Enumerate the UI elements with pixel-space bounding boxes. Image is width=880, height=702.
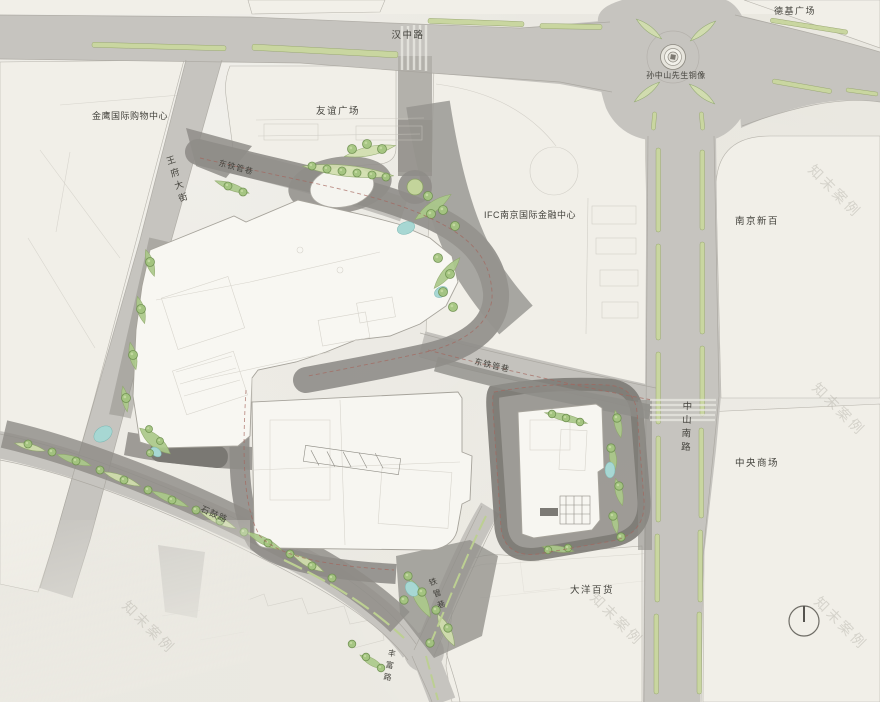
tree — [439, 206, 448, 215]
tree — [562, 414, 570, 422]
tree-highlight — [170, 498, 172, 500]
tree-highlight — [310, 564, 312, 566]
tree-highlight — [226, 184, 228, 186]
tree-highlight — [451, 305, 454, 308]
north-sidewalk — [0, 0, 880, 14]
tree — [144, 486, 152, 494]
tree — [157, 438, 164, 445]
tree-highlight — [74, 459, 76, 461]
tree-highlight — [350, 147, 353, 150]
drawing-fade — [0, 520, 250, 702]
green-median — [700, 242, 705, 334]
tree — [72, 457, 80, 465]
tree-highlight — [611, 514, 614, 517]
tree-highlight — [446, 626, 449, 629]
green-median — [697, 612, 702, 694]
tree — [146, 258, 155, 267]
tree — [427, 210, 436, 219]
tree — [348, 145, 357, 154]
green-median — [540, 23, 602, 29]
tree-highlight — [406, 574, 409, 577]
tree-highlight — [340, 169, 342, 171]
tree — [137, 305, 146, 314]
tree-highlight — [578, 420, 580, 422]
tree — [576, 418, 584, 426]
tree-highlight — [139, 307, 142, 310]
block-xinbai — [716, 136, 880, 398]
tree-highlight — [441, 290, 444, 293]
tree-highlight — [325, 167, 327, 169]
tree — [400, 596, 408, 604]
tree — [122, 394, 131, 403]
green-median — [655, 534, 660, 602]
tree — [418, 588, 426, 596]
tree-highlight — [384, 175, 386, 177]
tree — [24, 440, 32, 448]
tree-highlight — [330, 576, 332, 578]
tree-highlight — [434, 608, 437, 611]
site-plan-canvas: 汉中路 德基广场 孙中山先生铜像 金鹰国际购物中心 友谊广场 王府大街 东铁管巷… — [0, 0, 880, 702]
tree-highlight — [428, 641, 431, 644]
tree-highlight — [617, 484, 620, 487]
tree — [362, 653, 370, 661]
site-plan-drawing — [0, 0, 880, 702]
tree — [168, 496, 176, 504]
tree-highlight — [131, 353, 134, 356]
tree — [224, 182, 232, 190]
tree — [368, 171, 376, 179]
tree — [96, 466, 104, 474]
tree — [548, 410, 556, 418]
tree-highlight — [436, 256, 439, 259]
tree-highlight — [148, 451, 150, 453]
tree — [424, 192, 433, 201]
tree-highlight — [615, 416, 618, 419]
tree-highlight — [441, 208, 444, 211]
tree-highlight — [420, 590, 423, 593]
tree — [434, 254, 443, 263]
tree — [444, 624, 452, 632]
tree-highlight — [146, 488, 148, 490]
tree-highlight — [364, 655, 366, 657]
green-median — [699, 428, 704, 518]
tree — [615, 482, 623, 490]
tree — [120, 476, 128, 484]
connector-green-circle — [407, 179, 423, 195]
tree-highlight — [124, 396, 127, 399]
tree-highlight — [370, 173, 372, 175]
water-pond — [605, 462, 615, 478]
tree-highlight — [98, 468, 100, 470]
tree — [607, 444, 615, 452]
green-median — [698, 530, 703, 602]
tree-highlight — [50, 450, 52, 452]
tree-highlight — [609, 446, 612, 449]
tree-highlight — [379, 666, 381, 668]
tree-highlight — [380, 147, 383, 150]
tree-highlight — [448, 272, 451, 275]
tree-highlight — [350, 642, 352, 644]
tree — [328, 574, 336, 582]
tree — [382, 173, 390, 181]
tree-highlight — [426, 194, 429, 197]
tree — [609, 512, 617, 520]
tree — [446, 270, 455, 279]
tree-highlight — [122, 478, 124, 480]
tree-highlight — [564, 416, 566, 418]
tree-highlight — [550, 412, 552, 414]
tree — [432, 606, 440, 614]
tree-highlight — [147, 427, 149, 429]
block-zhongyang — [703, 404, 880, 702]
tree-highlight — [365, 142, 368, 145]
east-edge-strip — [638, 400, 652, 550]
tree-highlight — [310, 164, 312, 166]
green-median — [656, 436, 661, 522]
tree — [147, 450, 154, 457]
tree-highlight — [355, 171, 357, 173]
tree — [404, 572, 412, 580]
tree — [613, 414, 621, 422]
tree-highlight — [194, 508, 196, 510]
green-median — [654, 614, 659, 694]
tree — [439, 288, 448, 297]
statue-monument — [661, 45, 686, 70]
tree — [239, 188, 247, 196]
tree-highlight — [566, 546, 568, 548]
tree — [377, 664, 385, 672]
tree-highlight — [148, 260, 151, 263]
tree-highlight — [453, 224, 456, 227]
tree-highlight — [429, 212, 432, 215]
tree-highlight — [619, 535, 622, 538]
tree-highlight — [241, 190, 243, 192]
tree-highlight — [546, 548, 548, 550]
tree — [348, 640, 356, 648]
tree — [338, 167, 346, 175]
green-median — [656, 244, 661, 340]
tree — [129, 351, 138, 360]
green-median — [700, 150, 705, 230]
tree-highlight — [158, 439, 160, 441]
tree — [264, 539, 272, 547]
tree — [449, 303, 458, 312]
tree — [617, 533, 625, 541]
southeast-building — [518, 404, 604, 538]
tree-highlight — [402, 598, 405, 601]
tree — [353, 169, 361, 177]
tree — [323, 165, 331, 173]
tree — [378, 145, 387, 154]
tree — [308, 562, 316, 570]
tree-highlight — [26, 442, 28, 444]
tree — [192, 506, 200, 514]
south-building — [252, 392, 472, 550]
tree — [363, 140, 372, 149]
green-median — [656, 352, 661, 424]
tree — [308, 162, 316, 170]
roundabout-plaza — [597, 0, 753, 140]
sidewalk-island — [248, 0, 385, 14]
plaza-connector-south — [398, 120, 432, 176]
tree — [48, 448, 56, 456]
tree — [146, 426, 153, 433]
green-median — [656, 148, 661, 232]
